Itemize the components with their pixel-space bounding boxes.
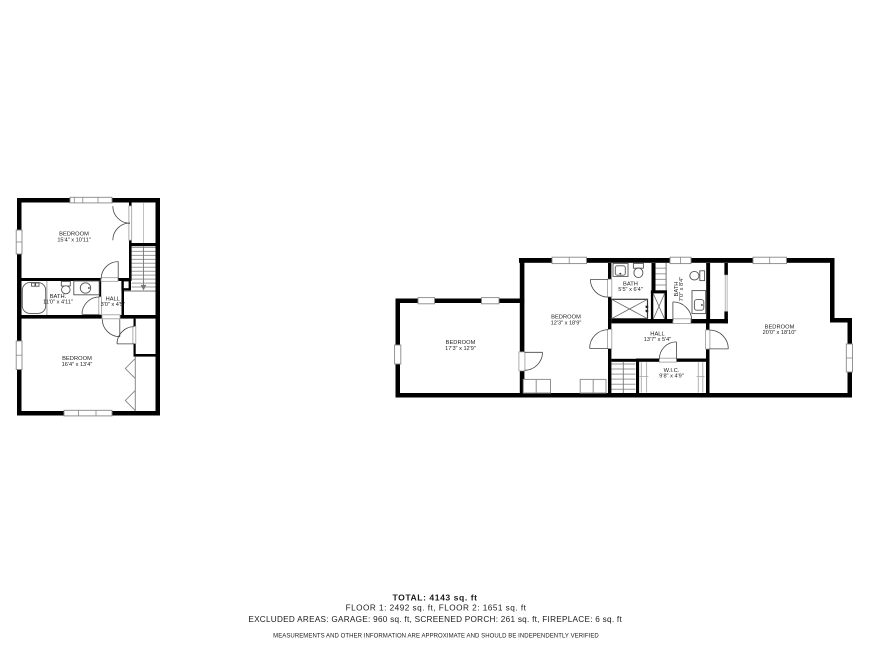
svg-text:5'5" x 6'4": 5'5" x 6'4" — [618, 287, 642, 293]
svg-text:MEASUREMENTS AND OTHER INFORMA: MEASUREMENTS AND OTHER INFORMATION ARE A… — [273, 633, 599, 639]
svg-text:TOTAL: 4143 sq. ft: TOTAL: 4143 sq. ft — [392, 592, 477, 602]
svg-text:FLOOR 1: 2492 sq. ft, FLOOR 2:: FLOOR 1: 2492 sq. ft, FLOOR 2: 1651 sq. … — [346, 604, 527, 613]
svg-text:13'7" x 5'4": 13'7" x 5'4" — [644, 337, 672, 343]
svg-text:11'0" x 4'11": 11'0" x 4'11" — [43, 300, 73, 306]
svg-text:16'4" x 13'4": 16'4" x 13'4" — [62, 362, 93, 368]
svg-text:EXCLUDED AREAS: GARAGE: 960 sq: EXCLUDED AREAS: GARAGE: 960 sq. ft, SCRE… — [248, 615, 622, 624]
svg-text:15'4" x 10'11": 15'4" x 10'11" — [57, 237, 90, 243]
svg-text:20'0" x 18'10": 20'0" x 18'10" — [763, 330, 797, 336]
svg-text:3'0" x 4'5": 3'0" x 4'5" — [101, 302, 125, 308]
svg-text:17'3" x 12'9": 17'3" x 12'9" — [445, 346, 476, 352]
svg-text:12'3" x 18'9": 12'3" x 18'9" — [551, 320, 582, 326]
svg-text:9'8" x 4'9": 9'8" x 4'9" — [659, 373, 683, 379]
svg-text:7'0" x 8'4": 7'0" x 8'4" — [679, 277, 685, 301]
